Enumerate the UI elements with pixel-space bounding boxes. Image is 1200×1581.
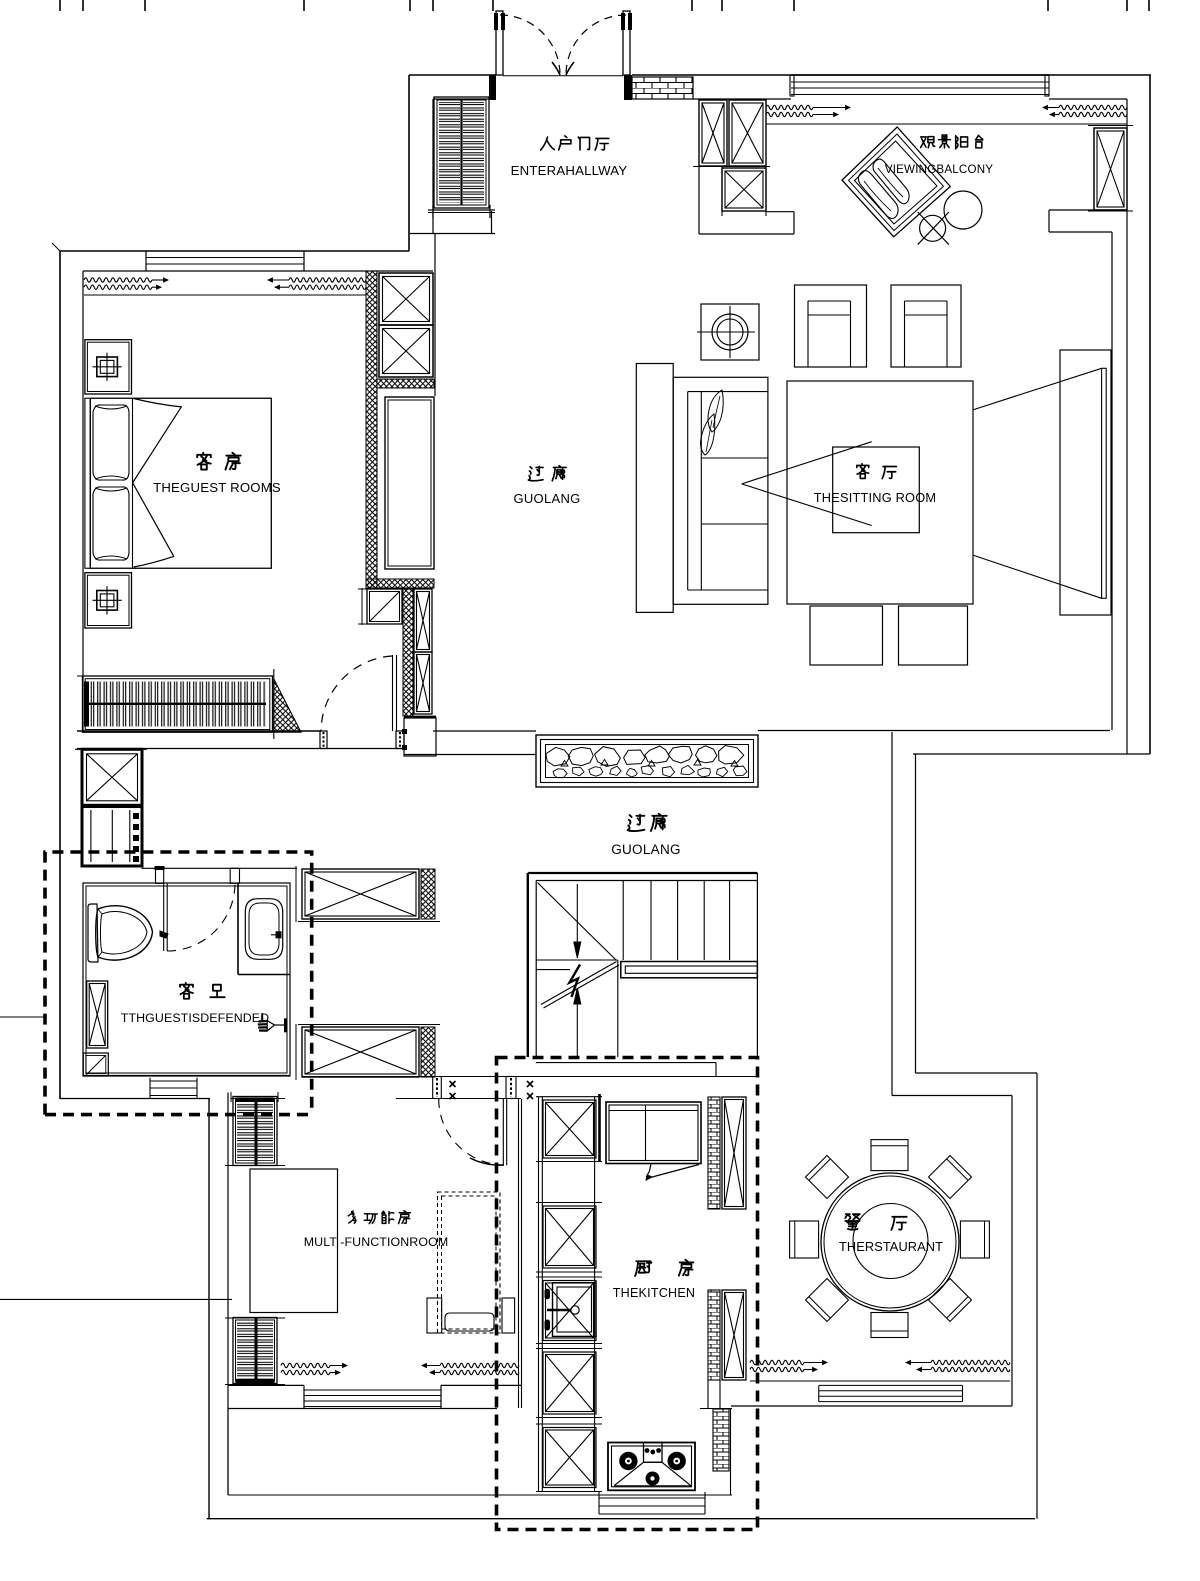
svg-text:THEGUEST ROOMS: THEGUEST ROOMS [153,480,281,495]
svg-text:GUOLANG: GUOLANG [513,491,580,506]
svg-text:MULT -FUNCTIONROOM: MULT -FUNCTIONROOM [304,1235,449,1249]
svg-text:GUOLANG: GUOLANG [611,842,681,857]
svg-text:TTHGUESTISDEFENDED: TTHGUESTISDEFENDED [121,1011,269,1025]
svg-text:THERSTAURANT: THERSTAURANT [839,1239,943,1254]
svg-text:THESITTING ROOM: THESITTING ROOM [814,490,936,505]
svg-text:ENTERAHALLWAY: ENTERAHALLWAY [511,163,628,178]
svg-text:THEKITCHEN: THEKITCHEN [613,1286,695,1300]
svg-text:VIEWINGBALCONY: VIEWINGBALCONY [885,163,994,176]
